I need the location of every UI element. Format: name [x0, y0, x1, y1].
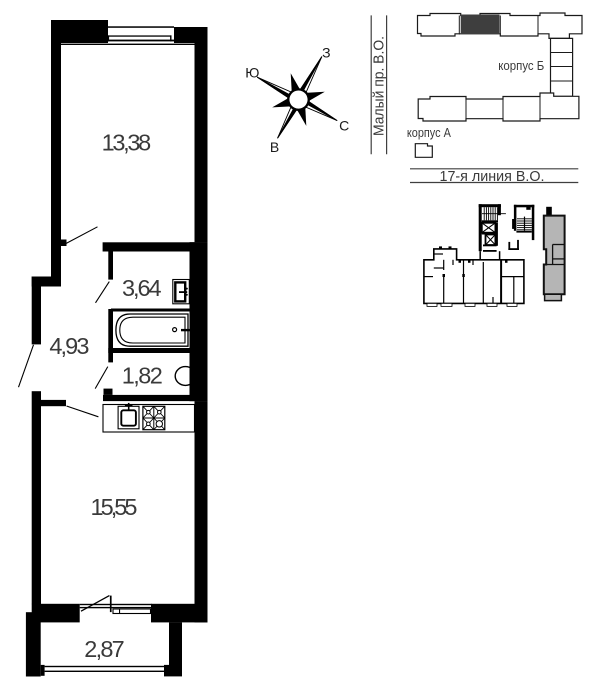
svg-text:15,55: 15,55: [91, 494, 138, 520]
svg-text:13,38: 13,38: [102, 130, 151, 156]
svg-text:В: В: [270, 139, 279, 155]
svg-text:2,87: 2,87: [84, 636, 125, 662]
svg-text:Малый пр. В.О.: Малый пр. В.О.: [371, 36, 388, 136]
svg-text:З: З: [322, 44, 330, 60]
svg-text:корпус Б: корпус Б: [498, 59, 544, 73]
svg-text:1,82: 1,82: [122, 363, 163, 389]
svg-text:3,64: 3,64: [122, 275, 162, 301]
svg-text:корпус А: корпус А: [407, 126, 452, 140]
svg-text:Ю: Ю: [245, 64, 259, 80]
svg-text:4,93: 4,93: [49, 333, 89, 359]
svg-text:С: С: [339, 118, 349, 134]
svg-text:17-я линия В.О.: 17-я линия В.О.: [440, 168, 545, 185]
